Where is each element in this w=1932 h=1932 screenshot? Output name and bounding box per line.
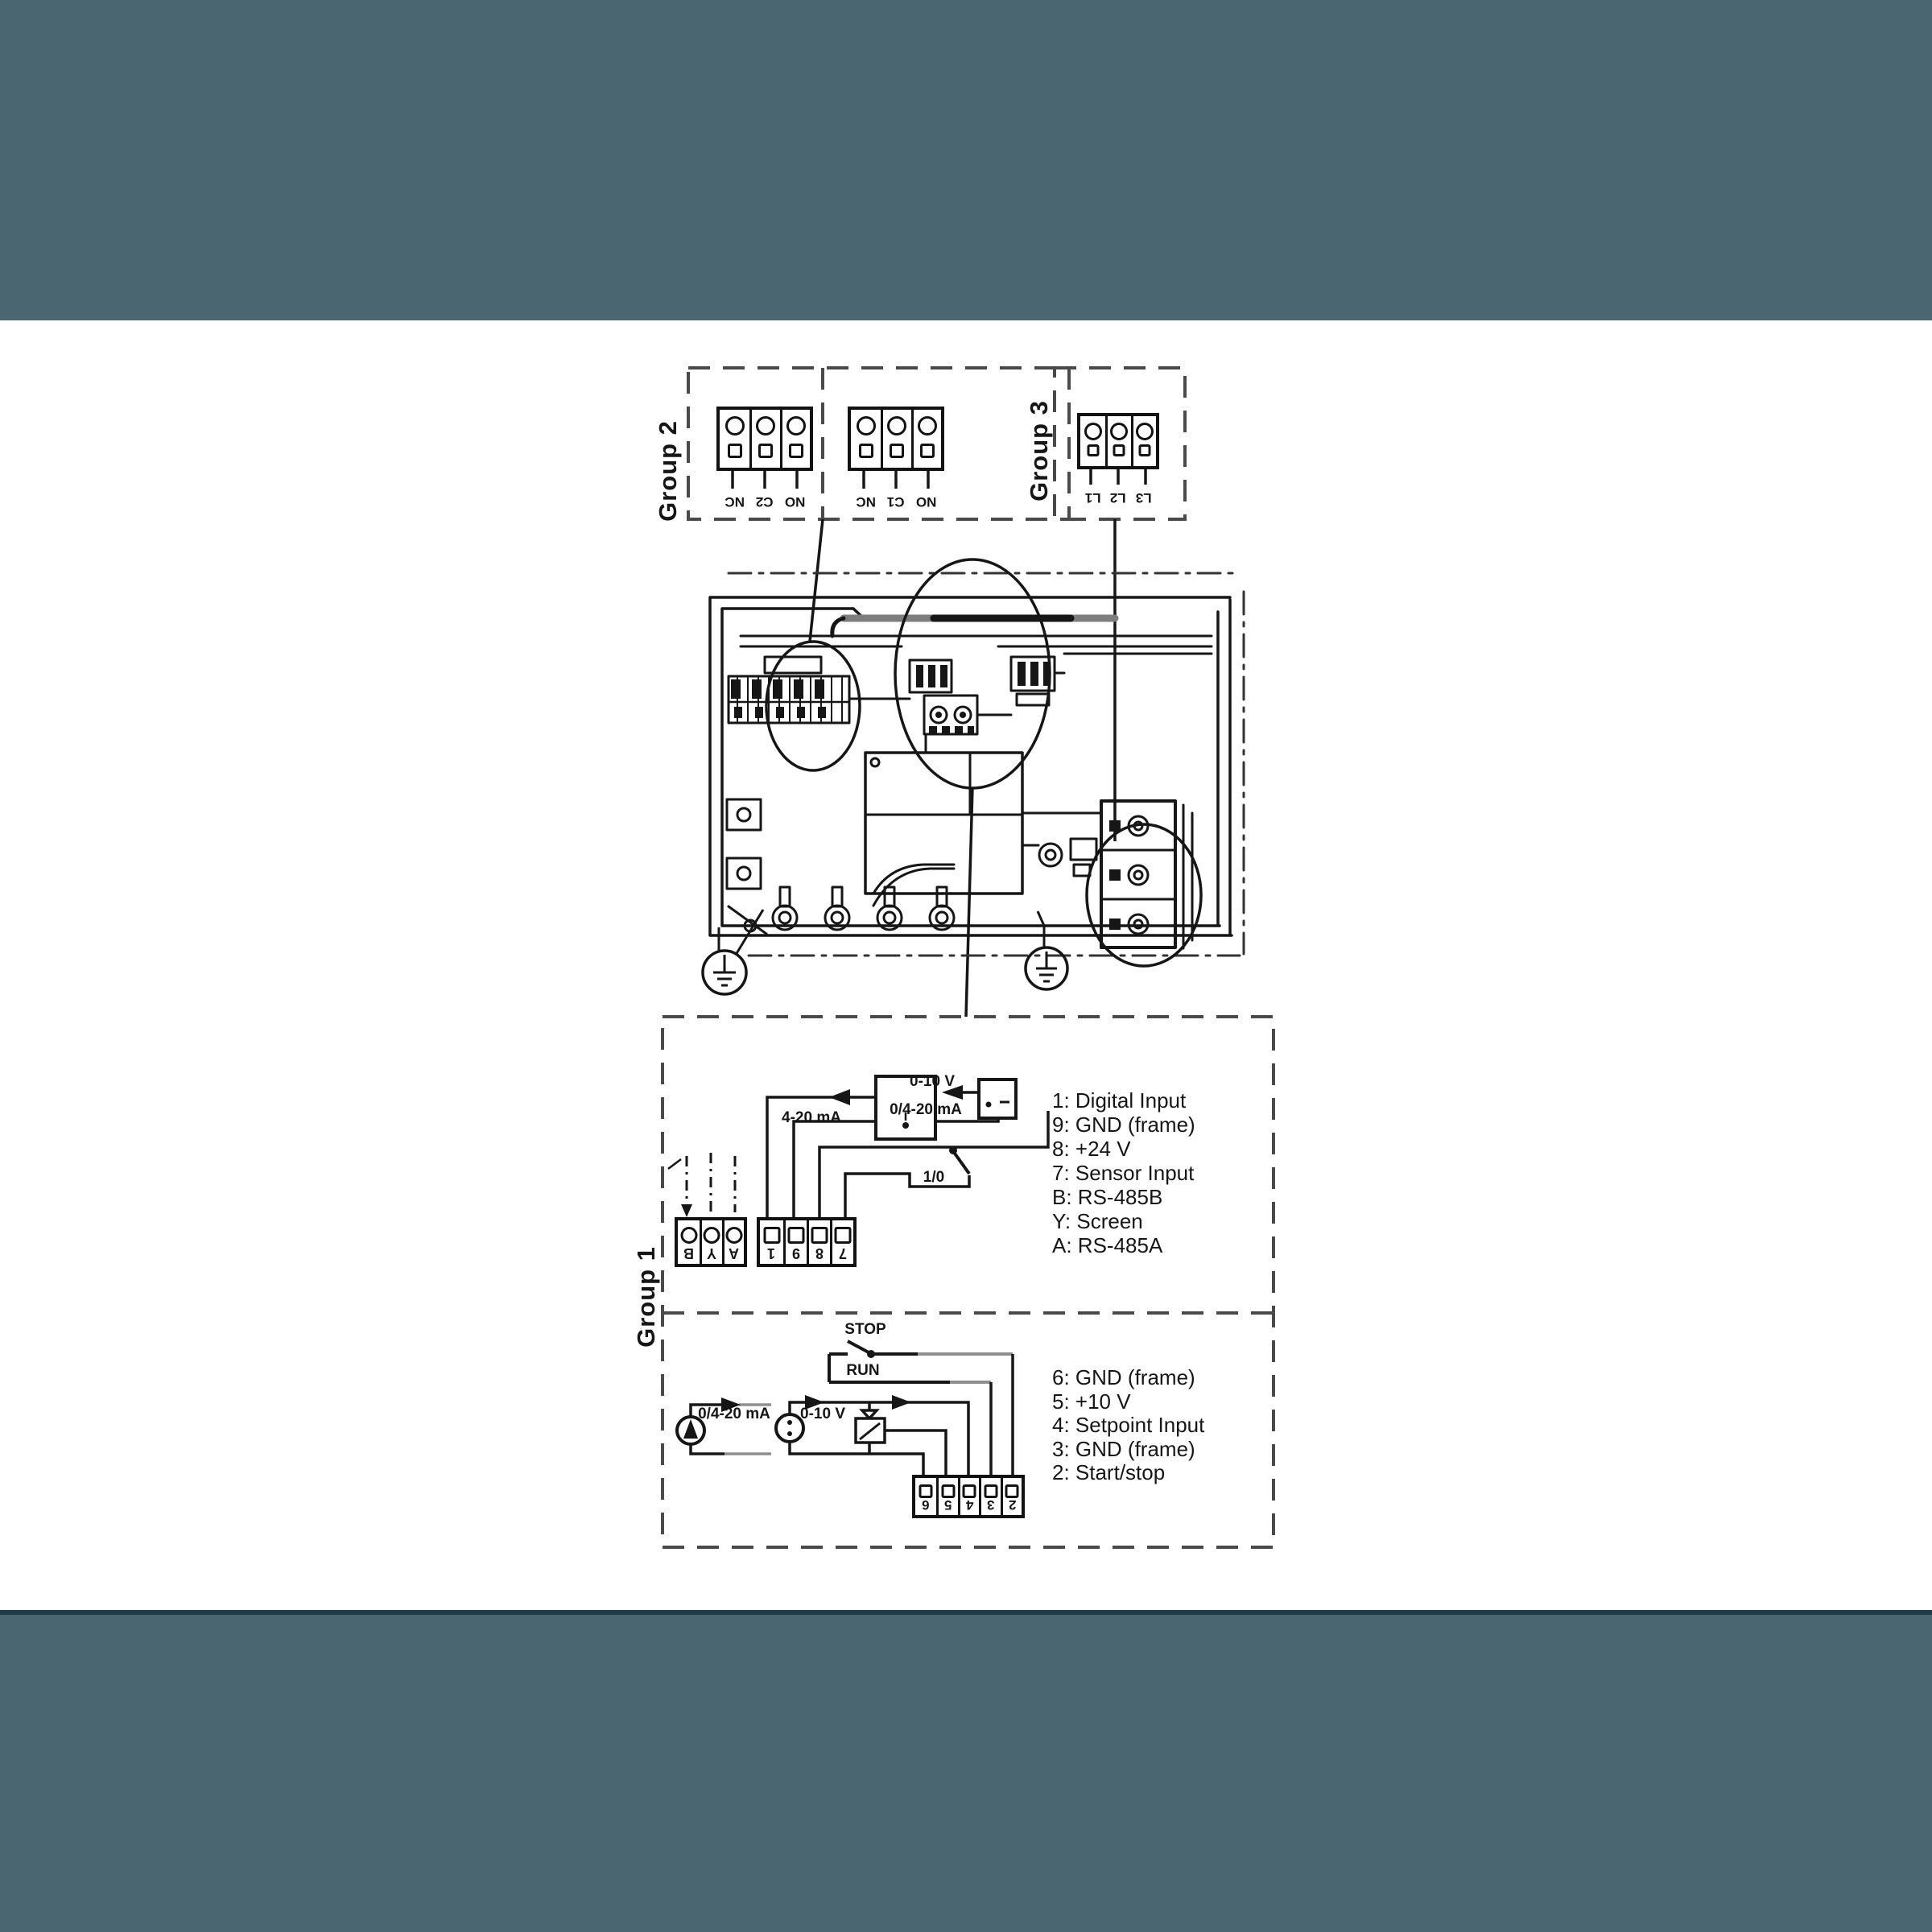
manual-page: Group 2 Group 3 Group 1 4-20 mA 0-10 V 0… xyxy=(0,0,1932,1932)
terminal-clamp xyxy=(763,1227,780,1244)
legend-row: A: RS-485A xyxy=(1052,1233,1195,1257)
voltage-source-symbol xyxy=(776,1414,803,1442)
legend-row: 9: GND (frame) xyxy=(1052,1113,1195,1137)
label-voltage-range-upper: 0-10 V xyxy=(910,1073,955,1091)
terminal-screw-hole xyxy=(725,1227,742,1244)
terminal-cell: 5 xyxy=(936,1478,957,1515)
sensor-box-right xyxy=(979,1080,1016,1118)
terminal-cell xyxy=(1105,416,1130,466)
group1-lower-legend: 6: GND (frame)5: +10 V4: Setpoint Input3… xyxy=(1052,1366,1204,1485)
terminal-cell xyxy=(720,410,749,468)
legend-row: 1: Digital Input xyxy=(1052,1088,1195,1113)
terminal-clamp xyxy=(1138,444,1150,456)
terminal-cell: 6 xyxy=(915,1478,936,1515)
terminal-cell: 9 xyxy=(783,1220,807,1264)
terminal-label: 5 xyxy=(939,1496,957,1513)
group1-upper-legend: 1: Digital Input9: GND (frame)8: +24 V7:… xyxy=(1052,1088,1195,1257)
legend-row: 2: Start/stop xyxy=(1052,1461,1204,1485)
terminal-label: L2 xyxy=(1105,486,1130,506)
group2-relay-block-2 xyxy=(848,407,944,471)
rs485-bus-wires xyxy=(687,1153,735,1212)
terminal-label: NO xyxy=(780,490,810,510)
terminal-clamp xyxy=(1113,444,1125,456)
legend-row: Y: Screen xyxy=(1052,1209,1195,1233)
callout-group2 xyxy=(766,642,860,770)
terminal-clamp xyxy=(728,444,742,458)
terminal-label: L3 xyxy=(1131,486,1156,506)
terminal-cell: A xyxy=(722,1220,744,1264)
legend-row: 6: GND (frame) xyxy=(1052,1366,1204,1390)
terminal-label: C1 xyxy=(881,490,910,510)
terminal-screw-hole xyxy=(1110,423,1128,440)
group3-mains-block xyxy=(1077,413,1159,469)
terminal-cell xyxy=(749,410,779,468)
leader-group2 xyxy=(810,519,823,642)
terminal-clamp xyxy=(1087,444,1099,456)
terminal-clamp xyxy=(788,1227,805,1244)
terminal-screw-hole xyxy=(1136,423,1154,440)
arrow-down xyxy=(681,1204,692,1217)
digital-input-switch xyxy=(953,1151,969,1174)
terminal-label: L1 xyxy=(1080,486,1105,506)
terminal-label: NC xyxy=(720,490,749,510)
terminal-label: NO xyxy=(911,490,941,510)
terminal-cell: 2 xyxy=(1001,1478,1022,1515)
terminal-cell: 3 xyxy=(979,1478,1000,1515)
terminal-label: Y xyxy=(702,1245,721,1261)
group1-upper-circuit xyxy=(668,1076,1048,1217)
terminal-cell: 8 xyxy=(807,1220,830,1264)
terminal-label: 1 xyxy=(760,1245,783,1261)
startstop-switch-lever xyxy=(848,1341,869,1352)
terminal-screw-hole xyxy=(756,416,775,436)
terminal-label: 3 xyxy=(981,1496,1000,1513)
terminal-clamp xyxy=(835,1227,852,1244)
legend-row: 5: +10 V xyxy=(1052,1390,1204,1414)
ground-symbol-left xyxy=(703,910,763,994)
group1-input-block: 1987 xyxy=(757,1217,857,1267)
terminal-screw-hole xyxy=(725,416,745,436)
terminal-screw-hole xyxy=(704,1227,720,1244)
terminal-box-drawing xyxy=(710,559,1244,966)
terminal-cell: 1 xyxy=(760,1220,783,1264)
terminal-screw-hole xyxy=(857,416,876,436)
terminal-cell xyxy=(851,410,881,468)
terminal-label: C2 xyxy=(749,490,779,510)
terminal-cell: 4 xyxy=(958,1478,979,1515)
group1-rs485-block: BYA xyxy=(675,1217,747,1267)
leader-group1 xyxy=(966,788,972,1017)
terminal-cell: 7 xyxy=(830,1220,853,1264)
label-current-range-lower: 0/4-20 mA xyxy=(698,1406,770,1423)
terminal-clamp xyxy=(811,1227,828,1244)
wire-terminal6 xyxy=(790,1442,923,1475)
terminal-clamp xyxy=(758,444,773,458)
terminal-cell xyxy=(911,410,941,468)
terminal-cell xyxy=(1131,416,1156,466)
legend-row: B: RS-485B xyxy=(1052,1185,1195,1209)
terminal-clamp xyxy=(920,444,935,458)
group2-relay-block-1 xyxy=(716,407,813,471)
group1-title: Group 1 xyxy=(632,1246,661,1348)
terminal-label: 4 xyxy=(960,1496,979,1513)
legend-row: 7: Sensor Input xyxy=(1052,1161,1195,1185)
terminal-label: 8 xyxy=(809,1245,830,1261)
legend-row: 3: GND (frame) xyxy=(1052,1438,1204,1462)
terminal-cell xyxy=(881,410,910,468)
ground-symbol-right xyxy=(1026,911,1067,989)
terminal-cell: B xyxy=(678,1220,700,1264)
terminal-label: 7 xyxy=(832,1245,853,1261)
diagram-linework xyxy=(0,0,1932,1932)
terminal-label: 2 xyxy=(1003,1496,1022,1513)
label-voltage-range-lower: 0-10 V xyxy=(800,1406,845,1423)
terminal-label: A xyxy=(724,1245,744,1261)
terminal-label: NC xyxy=(851,490,881,510)
wire-terminal7 xyxy=(845,1174,969,1217)
label-switch-run: RUN xyxy=(846,1362,879,1380)
terminal-cell xyxy=(1080,416,1105,466)
arrow-right xyxy=(892,1395,911,1410)
terminal-screw-hole xyxy=(887,416,906,436)
terminal-label: 6 xyxy=(915,1496,936,1513)
terminal-screw-hole xyxy=(680,1227,697,1244)
label-switch-stop: STOP xyxy=(844,1321,885,1339)
label-combined-range-upper: 0/4-20 mA xyxy=(890,1101,962,1119)
terminal-cell xyxy=(780,410,810,468)
terminal-screw-hole xyxy=(918,416,937,436)
terminal-screw-hole xyxy=(786,416,806,436)
group2-title: Group 2 xyxy=(654,420,683,522)
group1-setpoint-block: 65432 xyxy=(912,1475,1025,1518)
terminal-cell: Y xyxy=(700,1220,721,1264)
legend-row: 8: +24 V xyxy=(1052,1137,1195,1161)
arrow-left xyxy=(829,1089,850,1105)
terminal-label: B xyxy=(678,1245,700,1261)
terminal-screw-hole xyxy=(1084,423,1102,440)
leader-lines xyxy=(810,519,1115,1017)
label-current-range-upper: 4-20 mA xyxy=(782,1109,841,1127)
terminal-clamp xyxy=(859,444,873,458)
terminal-clamp xyxy=(890,444,904,458)
group3-title: Group 3 xyxy=(1025,400,1054,502)
label-switch-upper: 1/0 xyxy=(923,1169,944,1187)
terminal-clamp xyxy=(789,444,803,458)
legend-row: 4: Setpoint Input xyxy=(1052,1414,1204,1438)
terminal-label: 9 xyxy=(786,1245,807,1261)
